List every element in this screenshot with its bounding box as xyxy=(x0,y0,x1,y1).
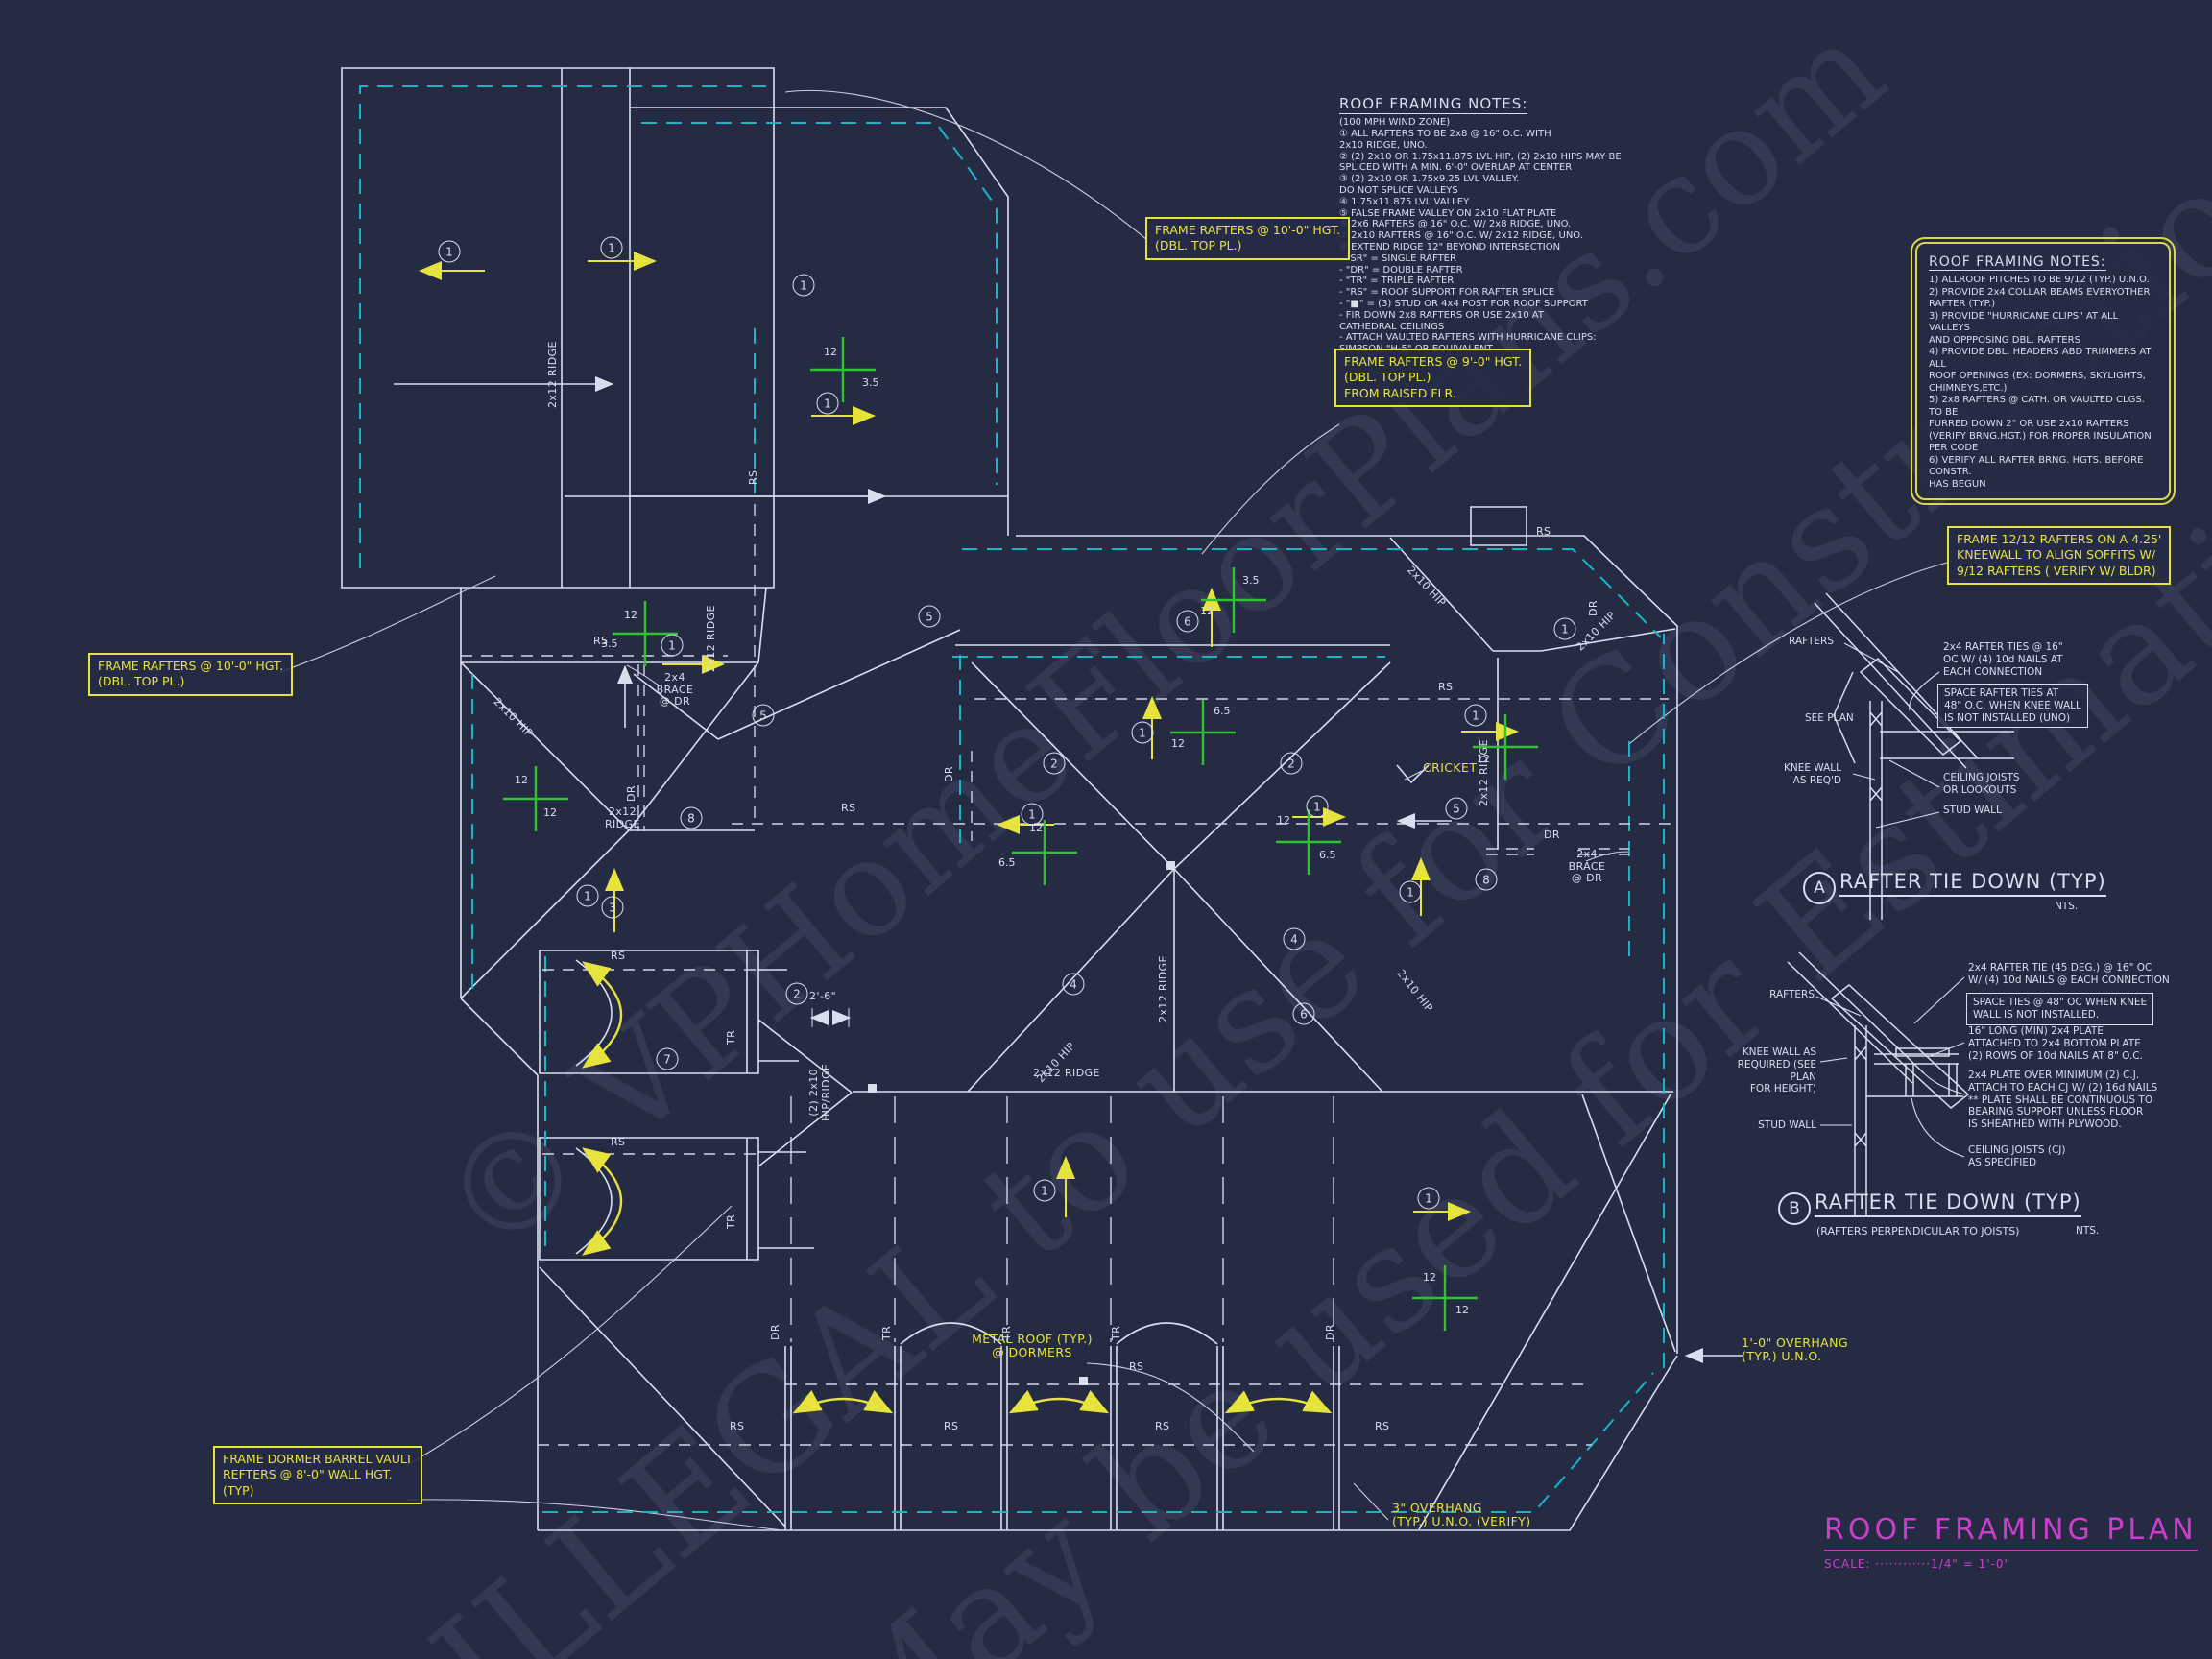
roof-framing-notes-boxed: ROOF FRAMING NOTES: 1) ALLROOF PITCHES T… xyxy=(1915,242,2171,500)
slope-12: 12 xyxy=(543,806,557,819)
label-overhang-1ft: 1'-0" OVERHANG (TYP.) U.N.O. xyxy=(1742,1336,1848,1364)
detail-a-knee-wall-label: KNEE WALL AS REQ'D xyxy=(1765,762,1841,787)
label-dim-2-6: 2'-6" xyxy=(809,991,836,1003)
detail-a-see-plan-label: SEE PLAN xyxy=(1805,712,1854,725)
slope-12: 12 xyxy=(1171,737,1185,750)
keynote-bubble: 1 xyxy=(817,393,839,415)
keynote-bubble: 1 xyxy=(1034,1180,1056,1202)
keynote-bubble: 1 xyxy=(1307,796,1329,818)
slope-12: 12 xyxy=(1200,605,1214,617)
label-dr: DR xyxy=(1588,600,1600,616)
keynote-bubble: 5 xyxy=(1446,798,1468,820)
detail-b-plate-note: 16" LONG (MIN) 2x4 PLATE ATTACHED TO 2x4… xyxy=(1968,1025,2143,1062)
label-overhang-3in: 3" OVERHANG (TYP.) U.N.O. (VERIFY) xyxy=(1392,1502,1531,1529)
label-rs: RS xyxy=(748,470,760,485)
keynote-bubble: 2 xyxy=(786,983,808,1005)
keynote-bubble: 1 xyxy=(1465,705,1487,727)
post-squares xyxy=(868,861,1175,1385)
slope-12: 12 xyxy=(1477,753,1490,765)
keynote-bubble: 8 xyxy=(1476,869,1498,891)
label-rs: RS xyxy=(1375,1421,1389,1433)
detail-a-title: RAFTER TIE DOWN (TYP) xyxy=(1839,870,2106,897)
detail-a-bubble: A xyxy=(1803,872,1836,904)
keynote-bubble: 2 xyxy=(1281,753,1303,775)
slope-6-5: 6.5 xyxy=(998,856,1016,869)
callout-frame-rafters-10-top: FRAME RAFTERS @ 10'-0" HGT. (DBL. TOP PL… xyxy=(1145,217,1350,260)
label-rs: RS xyxy=(1129,1361,1143,1374)
label-tr: TR xyxy=(1001,1326,1014,1340)
label-dr: DR xyxy=(944,766,956,782)
slope-12: 12 xyxy=(824,346,837,358)
keynote-bubble: 1 xyxy=(439,241,461,263)
slope-3-5: 3.5 xyxy=(1242,574,1260,587)
label-tr: TR xyxy=(726,1030,738,1045)
label-ridge-2x12: 2x12 RIDGE xyxy=(706,605,718,672)
label-tr: TR xyxy=(881,1326,894,1340)
keynote-bubble: 1 xyxy=(1022,804,1044,826)
detail-a-tie-note: 2x4 RAFTER TIES @ 16" OC W/ (4) 10d NAIL… xyxy=(1943,641,2063,678)
slope-12: 12 xyxy=(1277,814,1290,827)
detail-b-plate2-note: 2x4 PLATE OVER MINIMUM (2) C.J. ATTACH T… xyxy=(1968,1070,2157,1131)
sheet-title: ROOF FRAMING PLAN xyxy=(1824,1513,2198,1551)
slope-12: 12 xyxy=(624,609,637,621)
slope-12: 12 xyxy=(1455,1304,1469,1316)
detail-a-stud-wall-label: STUD WALL xyxy=(1943,805,2002,817)
label-hip-ridge-2x10: (2) 2x10 HIP/RIDGE xyxy=(808,1064,832,1121)
slope-6-5: 6.5 xyxy=(1319,849,1336,861)
leader-lines xyxy=(280,90,1947,1530)
notes-body: ① ALL RAFTERS TO BE 2x8 @ 16" O.C. WITH … xyxy=(1339,129,1671,355)
blueprint-sheet: © VPHomeFloorPlans.com ILLEGAL to use fo… xyxy=(0,0,2212,1659)
callout-kneewall-note: FRAME 12/12 RAFTERS ON A 4.25' KNEEWALL … xyxy=(1947,526,2171,585)
keynote-bubble: 1 xyxy=(1418,1188,1440,1210)
keynote-bubble: 4 xyxy=(1284,928,1306,950)
slope-12: 12 xyxy=(1423,1271,1436,1284)
label-ridge-2x12: 2x12 RIDGE xyxy=(1158,955,1170,1022)
callout-dormer-barrel-vault: FRAME DORMER BARREL VAULT REFTERS @ 8'-0… xyxy=(213,1446,422,1504)
detail-b-knee-wall-label: KNEE WALL AS REQUIRED (SEE PLAN FOR HEIG… xyxy=(1728,1046,1816,1095)
keynote-bubble: 1 xyxy=(601,237,623,259)
detail-b-bubble: B xyxy=(1778,1192,1811,1225)
boxed-notes-body: 1) ALLROOF PITCHES TO BE 9/12 (TYP.) U.N… xyxy=(1929,275,2157,491)
label-brace-right: 2x4 BRACE @ DR xyxy=(1553,849,1621,885)
notes-title: ROOF FRAMING NOTES: xyxy=(1339,95,1527,114)
detail-a-ceiling-joists-label: CEILING JOISTS OR LOOKOUTS xyxy=(1943,772,2020,797)
detail-b-tie-note: 2x4 RAFTER TIE (45 DEG.) @ 16" OC W/ (4)… xyxy=(1968,962,2170,987)
boxed-notes-title: ROOF FRAMING NOTES: xyxy=(1929,254,2106,271)
label-rs: RS xyxy=(1536,526,1551,539)
detail-b-nts: NTS. xyxy=(2076,1225,2099,1238)
detail-b-title: RAFTER TIE DOWN (TYP) xyxy=(1815,1190,2081,1217)
detail-b-ceiling-joists-label: CEILING JOISTS (CJ) AS SPECIFIED xyxy=(1968,1144,2066,1169)
label-dr: DR xyxy=(626,785,638,802)
slope-3-5: 3.5 xyxy=(601,637,618,650)
slope-3-5: 3.5 xyxy=(862,376,879,389)
detail-a-rafters-label: RAFTERS xyxy=(1767,636,1834,648)
label-rs: RS xyxy=(1155,1421,1169,1433)
slope-12: 12 xyxy=(515,774,528,786)
dormer-wall-lines xyxy=(791,1096,1334,1342)
keynote-bubble: 8 xyxy=(681,807,703,829)
label-ridge-2x12-2line: 2x12 RIDGE xyxy=(605,806,640,830)
label-dr: DR xyxy=(770,1324,782,1340)
detail-a-space-note: SPACE RAFTER TIES AT 48" O.C. WHEN KNEE … xyxy=(1937,684,2088,728)
keynote-bubble: 5 xyxy=(919,606,941,628)
keynote-bubble: 7 xyxy=(657,1048,679,1070)
sheet-scale: SCALE: ············1/4" = 1'-0" xyxy=(1824,1557,2010,1571)
label-dr: DR xyxy=(1544,829,1560,842)
notes-wind-zone: (100 MPH WIND ZONE) xyxy=(1339,117,1671,128)
keynote-bubble: 4 xyxy=(1063,974,1085,996)
keynote-bubble: 6 xyxy=(1177,611,1199,633)
label-brace-left: 2x4 BRACE @ DR xyxy=(641,672,709,709)
plan-linework xyxy=(0,0,2212,1659)
label-ridge-2x12: 2x12 RIDGE xyxy=(1479,739,1491,806)
label-rs: RS xyxy=(611,950,625,963)
keynote-bubble: 1 xyxy=(1132,722,1154,744)
label-rs: RS xyxy=(1438,682,1453,694)
label-cricket: CRICKET xyxy=(1423,761,1477,775)
label-tr: TR xyxy=(1111,1326,1123,1340)
label-dr: DR xyxy=(1325,1324,1337,1340)
keynote-bubble: 1 xyxy=(661,635,684,657)
callout-frame-rafters-10-left: FRAME RAFTERS @ 10'-0" HGT. (DBL. TOP PL… xyxy=(88,653,293,696)
keynote-bubble: 1 xyxy=(1554,618,1576,640)
label-rs: RS xyxy=(611,1137,625,1149)
detail-b-space-note: SPACE TIES @ 48" OC WHEN KNEE WALL IS NO… xyxy=(1966,993,2153,1025)
label-ridge-2x12: 2x12 RIDGE xyxy=(547,341,560,408)
detail-b-stud-wall-label: STUD WALL xyxy=(1749,1119,1816,1132)
keynote-bubble: 1 xyxy=(1400,881,1422,903)
label-rs: RS xyxy=(730,1421,744,1433)
callout-frame-rafters-9: FRAME RAFTERS @ 9'-0" HGT. (DBL. TOP PL.… xyxy=(1334,349,1531,407)
label-tr: TR xyxy=(726,1214,738,1229)
slope-6-5: 6.5 xyxy=(1214,705,1231,717)
roof-framing-notes-main: ROOF FRAMING NOTES: (100 MPH WIND ZONE) … xyxy=(1339,94,1671,355)
label-rs: RS xyxy=(944,1421,958,1433)
keynote-bubble: 2 xyxy=(1044,753,1066,775)
keynote-bubble: 1 xyxy=(793,275,815,297)
slope-pitch-crosses xyxy=(503,337,1538,1331)
detail-a-nts: NTS. xyxy=(2055,901,2078,913)
keynote-bubble: 6 xyxy=(1293,1003,1315,1025)
label-metal-roof: METAL ROOF (TYP.) @ DORMERS xyxy=(955,1333,1109,1360)
keynote-bubble: 1 xyxy=(577,885,599,907)
keynote-bubble: 5 xyxy=(753,705,775,727)
detail-b-rafters-label: RAFTERS xyxy=(1747,989,1815,1001)
keynote-bubble: 3 xyxy=(602,897,624,919)
detail-b-subtitle: (RAFTERS PERPENDICULAR TO JOISTS) xyxy=(1816,1225,2019,1238)
label-rs: RS xyxy=(841,803,855,815)
